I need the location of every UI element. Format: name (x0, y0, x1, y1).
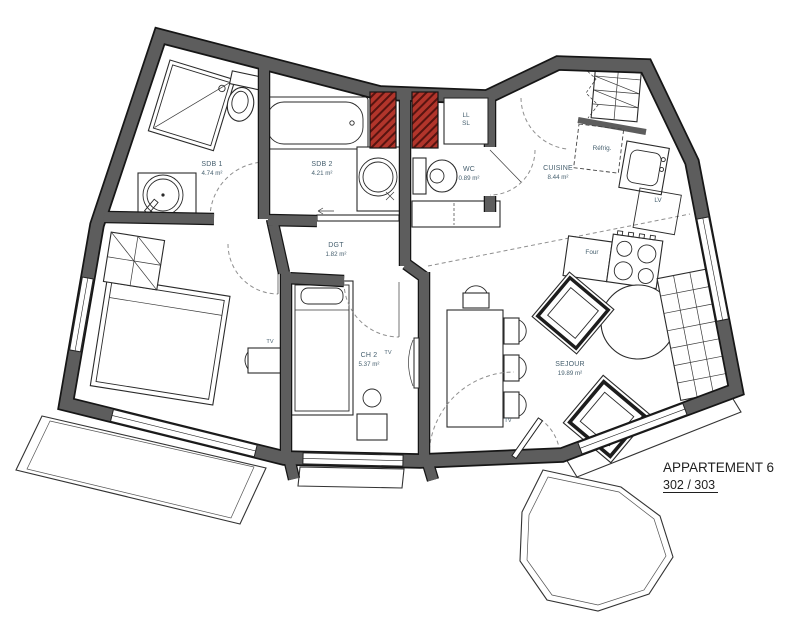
bathtub (262, 97, 368, 149)
toilet-wc (413, 158, 457, 194)
ch2-desk-stool (357, 389, 387, 440)
window-ch2 (303, 453, 403, 466)
apartment-title: APPARTEMENT 6 (663, 460, 774, 475)
room-label-sdb2: SDB 2 4.21 m² (311, 161, 332, 177)
tv-mount-arc (409, 340, 414, 386)
wardrobe (103, 232, 164, 290)
svg-text:CH 2: CH 2 (361, 352, 378, 359)
dryer-label: SL (462, 120, 470, 127)
tv-ch2 (414, 338, 419, 388)
room-label-sdb1: SDB 1 4.74 m² (201, 161, 222, 177)
svg-text:8.44 m²: 8.44 m² (548, 174, 569, 181)
title-block: APPARTEMENT 6 302 / 303 (663, 460, 774, 493)
room-label-wc: WC 0.89 m² (459, 166, 480, 182)
svg-text:0.89 m²: 0.89 m² (459, 175, 480, 182)
room-label-dgt: DGT 1.82 m² (326, 242, 347, 258)
washer-label: LL (462, 112, 470, 119)
window-left-wall (70, 277, 94, 352)
bed-double (90, 277, 230, 405)
svg-text:4.21 m²: 4.21 m² (312, 170, 333, 177)
oven-label: Four (585, 249, 599, 256)
shower (148, 60, 235, 151)
svg-text:SDB 2: SDB 2 (311, 161, 332, 168)
floor-plan-drawing: SDB 1 4.74 m² SDB 2 4.21 m² WC 0.89 m² C… (0, 0, 800, 627)
svg-text:SEJOUR: SEJOUR (555, 361, 585, 368)
fridge-label: Réfrig. (593, 145, 612, 152)
room-label-cuisine: CUISINE 8.44 m² (543, 165, 573, 181)
svg-text:19.89 m²: 19.89 m² (558, 370, 582, 377)
tv-stand (245, 348, 282, 373)
dining-table (447, 286, 526, 427)
vanity-sink-sdb1 (138, 173, 196, 218)
room-label-sejour: SEJOUR 19.89 m² (555, 361, 585, 377)
technical-shaft (412, 92, 438, 148)
bed-single (291, 281, 353, 415)
balcony-bottom-left (16, 416, 266, 524)
armchair (532, 272, 614, 354)
svg-text:1.82 m²: 1.82 m² (326, 251, 347, 258)
tv-label-ch1: TV (266, 339, 273, 345)
dishwasher (633, 188, 681, 235)
dishwasher-label: LV (654, 197, 662, 204)
tv-label-entry: TV (504, 418, 511, 424)
svg-text:WC: WC (463, 166, 475, 173)
dining-chair (504, 392, 526, 418)
svg-text:CUISINE: CUISINE (543, 165, 573, 172)
dining-chair (463, 286, 489, 308)
balcony-ch2-slab (298, 467, 404, 488)
apartment-units: 302 / 303 (663, 478, 715, 492)
technical-shaft (370, 92, 396, 148)
balcony-octagon (520, 470, 673, 611)
tv-label-ch2: TV (384, 350, 391, 356)
dining-chair (504, 355, 526, 381)
svg-text:4.74 m²: 4.74 m² (202, 170, 223, 177)
dining-chair (504, 318, 526, 344)
vanity-sink-sdb2 (357, 147, 400, 211)
svg-text:5.37 m²: 5.37 m² (359, 361, 380, 368)
svg-text:DGT: DGT (328, 242, 344, 249)
floor-plan-page: SDB 1 4.74 m² SDB 2 4.21 m² WC 0.89 m² C… (0, 0, 800, 627)
kitchen-sink (619, 141, 670, 195)
svg-text:SDB 1: SDB 1 (201, 161, 222, 168)
room-label-ch2: CH 2 5.37 m² (359, 352, 380, 368)
